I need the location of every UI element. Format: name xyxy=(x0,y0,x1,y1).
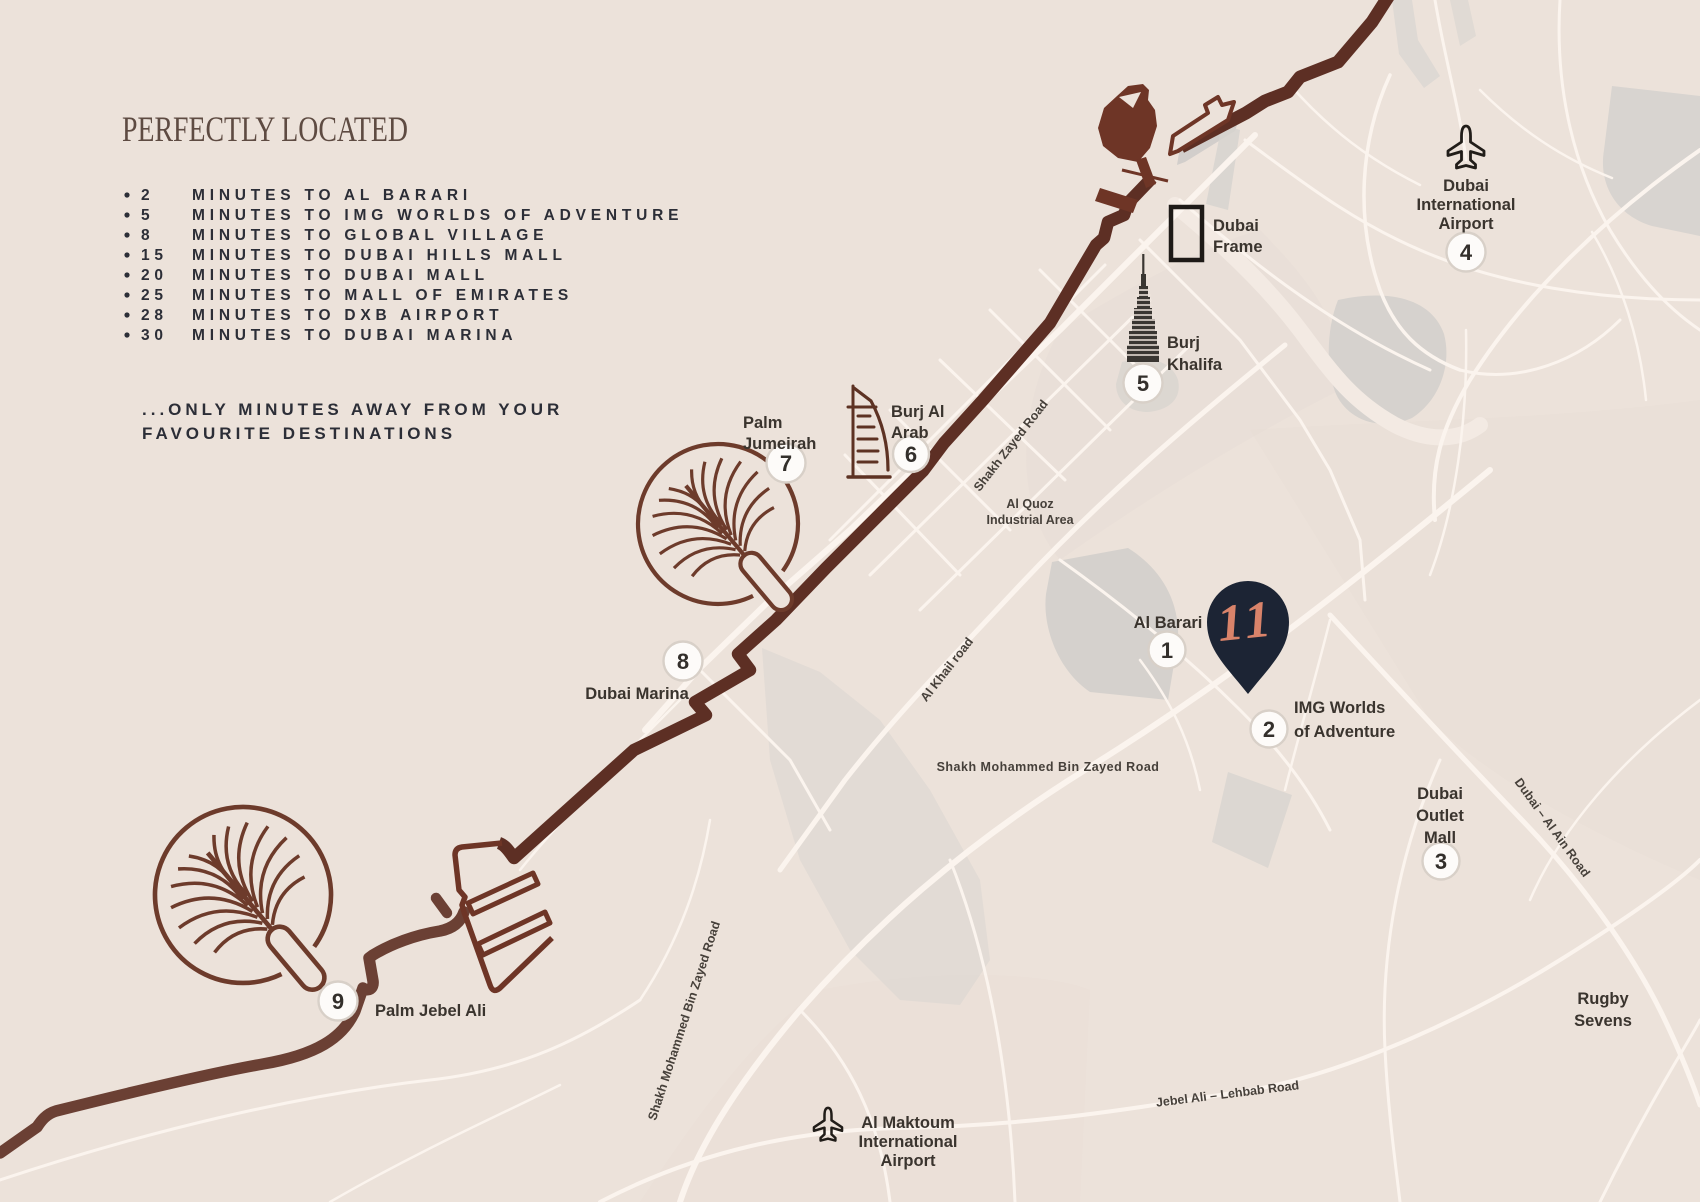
svg-text:Rugby: Rugby xyxy=(1577,990,1629,1008)
svg-text:9: 9 xyxy=(332,989,344,1014)
svg-text:Al Quoz: Al Quoz xyxy=(1006,497,1053,511)
svg-text:Jumeirah: Jumeirah xyxy=(743,435,816,453)
svg-text:28: 28 xyxy=(141,307,168,324)
svg-text:30: 30 xyxy=(141,327,168,344)
svg-text:MINUTES TO AL BARARI: MINUTES TO AL BARARI xyxy=(192,187,472,204)
svg-text:Dubai: Dubai xyxy=(1213,217,1259,235)
svg-text:5: 5 xyxy=(1137,371,1149,396)
svg-text:6: 6 xyxy=(905,442,917,467)
svg-text:8: 8 xyxy=(677,649,689,674)
svg-text:8: 8 xyxy=(141,227,154,244)
svg-text:1: 1 xyxy=(1161,638,1173,663)
svg-text:Al Maktoum: Al Maktoum xyxy=(861,1114,955,1132)
svg-text:25: 25 xyxy=(141,287,168,304)
svg-text:Dubai: Dubai xyxy=(1417,785,1463,803)
svg-text:Frame: Frame xyxy=(1213,238,1263,256)
svg-text:Shakh Mohammed Bin Zayed Road: Shakh Mohammed Bin Zayed Road xyxy=(937,760,1160,774)
svg-text:FAVOURITE DESTINATIONS: FAVOURITE DESTINATIONS xyxy=(142,424,456,443)
svg-text:MINUTES TO IMG WORLDS OF ADVEN: MINUTES TO IMG WORLDS OF ADVENTURE xyxy=(192,207,683,224)
svg-text:7: 7 xyxy=(780,451,792,476)
svg-text:Outlet: Outlet xyxy=(1416,807,1464,825)
svg-text:Mall: Mall xyxy=(1424,829,1456,847)
svg-text:Al Barari: Al Barari xyxy=(1134,614,1203,632)
svg-text:of Adventure: of Adventure xyxy=(1294,723,1395,741)
svg-text:Burj Al: Burj Al xyxy=(891,403,944,421)
svg-text:Airport: Airport xyxy=(1439,215,1495,233)
svg-text:Dubai: Dubai xyxy=(1443,177,1489,195)
svg-text:Khalifa: Khalifa xyxy=(1167,356,1223,374)
svg-text:MINUTES TO GLOBAL VILLAGE: MINUTES TO GLOBAL VILLAGE xyxy=(192,227,548,244)
svg-text:Palm: Palm xyxy=(743,414,782,432)
svg-text:Dubai Marina: Dubai Marina xyxy=(585,685,689,703)
svg-text:2: 2 xyxy=(1263,717,1275,742)
svg-text:5: 5 xyxy=(141,207,154,224)
svg-text:MINUTES TO MALL OF EMIRATES: MINUTES TO MALL OF EMIRATES xyxy=(192,287,573,304)
svg-text:...ONLY MINUTES AWAY FROM YOUR: ...ONLY MINUTES AWAY FROM YOUR xyxy=(142,400,563,419)
svg-text:MINUTES TO DXB AIRPORT: MINUTES TO DXB AIRPORT xyxy=(192,307,503,324)
svg-text:Sevens: Sevens xyxy=(1574,1012,1632,1030)
svg-text:Arab: Arab xyxy=(891,424,929,442)
svg-text:Industrial Area: Industrial Area xyxy=(986,513,1074,527)
svg-text:4: 4 xyxy=(1460,240,1473,265)
svg-text:IMG Worlds: IMG Worlds xyxy=(1294,699,1385,717)
svg-text:2: 2 xyxy=(141,187,154,204)
svg-text:International: International xyxy=(1416,196,1515,214)
svg-text:3: 3 xyxy=(1435,849,1447,874)
svg-text:MINUTES TO DUBAI MARINA: MINUTES TO DUBAI MARINA xyxy=(192,327,517,344)
svg-text:International: International xyxy=(858,1133,957,1151)
svg-text:11: 11 xyxy=(1215,590,1278,653)
svg-text:Burj: Burj xyxy=(1167,334,1200,352)
svg-text:PERFECTLY LOCATED: PERFECTLY LOCATED xyxy=(122,109,408,149)
svg-text:Palm Jebel Ali: Palm Jebel Ali xyxy=(375,1002,486,1020)
svg-text:20: 20 xyxy=(141,267,168,284)
svg-text:15: 15 xyxy=(141,247,168,264)
svg-text:MINUTES TO DUBAI HILLS MALL: MINUTES TO DUBAI HILLS MALL xyxy=(192,247,567,264)
svg-text:Airport: Airport xyxy=(881,1152,937,1170)
svg-text:MINUTES TO DUBAI MALL: MINUTES TO DUBAI MALL xyxy=(192,267,489,284)
